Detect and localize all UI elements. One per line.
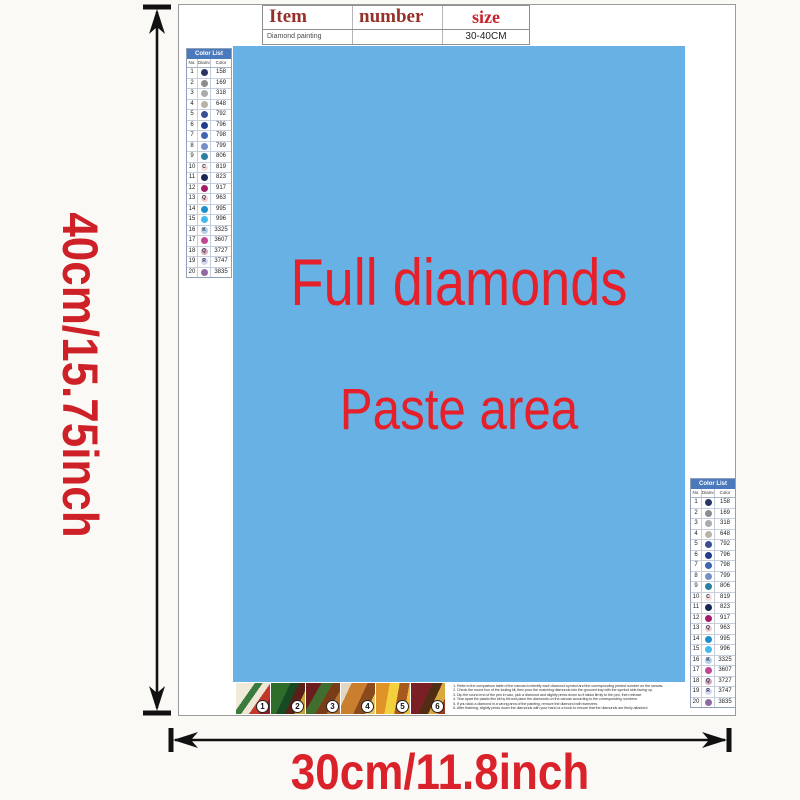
color-code: 917 xyxy=(715,614,735,624)
diamond-color-dot xyxy=(201,80,208,87)
color-row-number: 14 xyxy=(187,205,198,215)
diamond-swatch-cell xyxy=(198,110,211,120)
diamond-swatch-cell xyxy=(702,698,715,708)
diamond-color-dot: R xyxy=(705,688,712,695)
diamond-symbol: C xyxy=(201,164,208,171)
color-row-number: 17 xyxy=(691,666,702,676)
color-code: 318 xyxy=(211,89,231,99)
diamond-symbol: K xyxy=(705,657,712,664)
diamond-color-dot: K xyxy=(705,657,712,664)
diamond-swatch-cell xyxy=(198,142,211,152)
diamond-swatch-cell xyxy=(198,79,211,89)
diamond-color-dot xyxy=(201,206,208,213)
color-row: 15 996 xyxy=(187,215,231,226)
diamond-symbol xyxy=(201,237,208,244)
color-code: 819 xyxy=(211,163,231,173)
color-code: 798 xyxy=(211,131,231,141)
diamond-swatch-cell xyxy=(198,152,211,162)
height-dimension-label: 40cm/15.75inch xyxy=(51,199,109,551)
diamond-swatch-cell: Q xyxy=(702,624,715,634)
diamond-swatch-cell: C xyxy=(702,593,715,603)
col-color-label: Color xyxy=(715,489,735,497)
diamond-symbol xyxy=(201,132,208,139)
header-size: size xyxy=(443,6,529,29)
diamond-symbol xyxy=(201,80,208,87)
color-row: 8 799 xyxy=(691,572,735,583)
color-row: 16 K 3325 xyxy=(691,656,735,667)
color-row: 6 796 xyxy=(187,121,231,132)
diamond-color-dot xyxy=(705,562,712,569)
color-row: 9 806 xyxy=(187,152,231,163)
step-thumbnail-5: 5 xyxy=(376,683,410,714)
diamond-swatch-cell: Q xyxy=(702,677,715,687)
color-row-number: 1 xyxy=(691,498,702,508)
diamond-swatch-cell: R xyxy=(198,257,211,267)
diamond-color-dot xyxy=(201,153,208,160)
color-code: 169 xyxy=(211,79,231,89)
diamond-swatch-cell xyxy=(702,561,715,571)
item-table-value-row: Diamond painting 30-40CM xyxy=(263,30,529,44)
color-row-number: 16 xyxy=(187,226,198,236)
color-list-rows: 1 158 2 169 3 318 4 xyxy=(187,68,231,277)
color-code: 819 xyxy=(715,593,735,603)
header-item: Item xyxy=(263,6,353,29)
col-color-label: Color xyxy=(211,59,231,67)
diamond-color-dot xyxy=(705,636,712,643)
color-row: 12 917 xyxy=(187,184,231,195)
step-number-badge: 3 xyxy=(326,700,339,713)
diamond-swatch-cell xyxy=(702,614,715,624)
step-thumbnail-strip: 1 2 3 4 5 6 xyxy=(236,683,445,714)
instruction-text-block: 1. Refer to the comparison table of the … xyxy=(453,684,701,711)
paste-area-title: Full diamonds xyxy=(274,244,645,320)
diamond-symbol xyxy=(705,646,712,653)
diamond-swatch-cell: R xyxy=(702,687,715,697)
diamond-color-dot: Q xyxy=(201,195,208,202)
color-row-number: 19 xyxy=(187,257,198,267)
color-code: 963 xyxy=(211,194,231,204)
color-row: 4 648 xyxy=(187,100,231,111)
color-row-number: 10 xyxy=(187,163,198,173)
color-row-number: 20 xyxy=(187,268,198,278)
diamond-color-dot xyxy=(201,122,208,129)
diamond-symbol xyxy=(201,111,208,118)
color-code: 806 xyxy=(211,152,231,162)
diamond-symbol: Q xyxy=(705,625,712,632)
color-row-number: 16 xyxy=(691,656,702,666)
color-row-number: 6 xyxy=(187,121,198,131)
col-diamond-label: Diamond xyxy=(198,59,211,67)
color-row-number: 2 xyxy=(187,79,198,89)
diamond-swatch-cell: K xyxy=(198,226,211,236)
color-code: 995 xyxy=(211,205,231,215)
diamond-symbol xyxy=(201,69,208,76)
color-code: 648 xyxy=(211,100,231,110)
diamond-symbol xyxy=(705,562,712,569)
color-code: 3747 xyxy=(715,687,735,697)
diamond-color-dot xyxy=(705,499,712,506)
color-row: 5 792 xyxy=(691,540,735,551)
color-code: 3835 xyxy=(211,268,231,278)
color-row: 1 158 xyxy=(187,68,231,79)
height-dimension-arrow xyxy=(141,2,173,718)
color-row-number: 1 xyxy=(187,68,198,78)
color-list-panel-right: Color List No. Diamond Color 1 158 2 169 xyxy=(690,478,736,708)
step-number-badge: 6 xyxy=(431,700,444,713)
step-thumbnail-6: 6 xyxy=(411,683,445,714)
width-dimension-label: 30cm/11.8inch xyxy=(220,744,660,800)
diamond-swatch-cell xyxy=(198,100,211,110)
color-list-title: Color List xyxy=(691,479,735,489)
diamond-swatch-cell xyxy=(702,645,715,655)
item-name-cell: Diamond painting xyxy=(263,30,353,44)
paste-area-subtitle: Paste area xyxy=(267,376,651,443)
color-code: 792 xyxy=(211,110,231,120)
diamond-swatch-cell xyxy=(702,635,715,645)
diamond-swatch-cell xyxy=(702,551,715,561)
color-row-number: 9 xyxy=(187,152,198,162)
diamond-color-dot xyxy=(201,132,208,139)
color-row-number: 15 xyxy=(691,645,702,655)
color-code: 823 xyxy=(211,173,231,183)
diamond-swatch-cell xyxy=(702,509,715,519)
diamond-swatch-cell xyxy=(198,121,211,131)
color-row-number: 4 xyxy=(691,530,702,540)
color-row: 7 798 xyxy=(691,561,735,572)
diamond-color-dot xyxy=(705,573,712,580)
diamond-symbol: K xyxy=(201,227,208,234)
color-code: 3835 xyxy=(715,698,735,708)
diamond-swatch-cell xyxy=(198,184,211,194)
color-code: 798 xyxy=(715,561,735,571)
diamond-color-dot: R xyxy=(201,258,208,265)
diamond-symbol xyxy=(705,541,712,548)
diamond-symbol: Q xyxy=(705,678,712,685)
diamond-color-dot: C xyxy=(705,594,712,601)
color-row: 14 995 xyxy=(691,635,735,646)
diamond-symbol xyxy=(201,269,208,276)
diamond-swatch-cell xyxy=(702,582,715,592)
diamond-symbol xyxy=(705,499,712,506)
item-number-cell xyxy=(353,30,443,44)
color-row: 11 823 xyxy=(187,173,231,184)
color-code: 823 xyxy=(715,603,735,613)
color-code: 3325 xyxy=(211,226,231,236)
col-diamond-label: Diamond xyxy=(702,489,715,497)
color-list-column-headers: No. Diamond Color xyxy=(187,59,231,68)
color-row-number: 5 xyxy=(691,540,702,550)
diamond-color-dot xyxy=(705,604,712,611)
color-row: 3 318 xyxy=(187,89,231,100)
color-code: 169 xyxy=(715,509,735,519)
diamond-swatch-cell xyxy=(198,131,211,141)
color-row: 5 792 xyxy=(187,110,231,121)
color-row-number: 10 xyxy=(691,593,702,603)
diamond-color-dot xyxy=(201,101,208,108)
color-code: 917 xyxy=(211,184,231,194)
diamond-swatch-cell xyxy=(198,215,211,225)
color-row-number: 17 xyxy=(187,236,198,246)
color-code: 792 xyxy=(715,540,735,550)
step-thumbnail-1: 1 xyxy=(236,683,270,714)
diamond-symbol xyxy=(705,520,712,527)
diamond-symbol: C xyxy=(705,594,712,601)
diamond-symbol: Q xyxy=(201,248,208,255)
diamond-symbol xyxy=(201,153,208,160)
color-row-number: 3 xyxy=(187,89,198,99)
color-row-number: 6 xyxy=(691,551,702,561)
color-row: 13 Q 963 xyxy=(691,624,735,635)
diamond-symbol xyxy=(201,174,208,181)
color-code: 995 xyxy=(715,635,735,645)
diamond-color-dot xyxy=(705,646,712,653)
color-code: 996 xyxy=(715,645,735,655)
diamond-color-dot xyxy=(705,510,712,517)
color-code: 158 xyxy=(211,68,231,78)
diamond-symbol xyxy=(201,101,208,108)
color-code: 799 xyxy=(211,142,231,152)
item-info-table: Item number size Diamond painting 30-40C… xyxy=(262,5,530,45)
color-row-number: 5 xyxy=(187,110,198,120)
diamond-swatch-cell xyxy=(702,519,715,529)
color-row: 1 158 xyxy=(691,498,735,509)
diamond-symbol: R xyxy=(201,258,208,265)
diamond-painting-size-diagram: 40cm/15.75inch 30cm/11.8inch Item number… xyxy=(0,0,800,800)
diamond-swatch-cell xyxy=(702,666,715,676)
color-row: 20 3835 xyxy=(187,268,231,278)
diamond-color-dot xyxy=(201,90,208,97)
color-code: 3747 xyxy=(211,257,231,267)
color-row: 2 169 xyxy=(691,509,735,520)
color-row-number: 18 xyxy=(187,247,198,257)
color-row: 15 996 xyxy=(691,645,735,656)
item-size-cell: 30-40CM xyxy=(443,30,529,44)
diamond-swatch-cell xyxy=(702,530,715,540)
paste-area: Full diamonds Paste area xyxy=(233,46,685,682)
color-row-number: 14 xyxy=(691,635,702,645)
color-row: 11 823 xyxy=(691,603,735,614)
diamond-swatch-cell: C xyxy=(198,163,211,173)
color-row-number: 13 xyxy=(187,194,198,204)
color-code: 318 xyxy=(715,519,735,529)
color-row: 10 C 819 xyxy=(691,593,735,604)
color-row: 3 318 xyxy=(691,519,735,530)
diamond-symbol xyxy=(705,573,712,580)
diamond-symbol xyxy=(201,143,208,150)
color-row: 17 3607 xyxy=(187,236,231,247)
diamond-color-dot xyxy=(201,216,208,223)
color-row-number: 4 xyxy=(187,100,198,110)
color-row: 19 R 3747 xyxy=(187,257,231,268)
instruction-line: 6. After finishing, slightly press down … xyxy=(453,706,701,710)
step-thumbnail-3: 3 xyxy=(306,683,340,714)
diamond-color-dot xyxy=(705,615,712,622)
diamond-symbol xyxy=(705,636,712,643)
diamond-color-dot: C xyxy=(201,164,208,171)
diamond-swatch-cell xyxy=(198,173,211,183)
diamond-symbol: Q xyxy=(201,195,208,202)
diamond-color-dot xyxy=(705,583,712,590)
color-row: 4 648 xyxy=(691,530,735,541)
diamond-symbol xyxy=(705,615,712,622)
color-list-panel-left: Color List No. Diamond Color 1 158 2 169 xyxy=(186,48,232,278)
color-code: 648 xyxy=(715,530,735,540)
color-row: 9 806 xyxy=(691,582,735,593)
diamond-color-dot xyxy=(201,69,208,76)
diamond-swatch-cell xyxy=(198,68,211,78)
color-code: 796 xyxy=(211,121,231,131)
diamond-color-dot xyxy=(705,531,712,538)
color-code: 3727 xyxy=(715,677,735,687)
diamond-swatch-cell xyxy=(702,540,715,550)
color-code: 3607 xyxy=(211,236,231,246)
diamond-color-dot xyxy=(201,237,208,244)
color-code: 996 xyxy=(211,215,231,225)
diamond-swatch-cell xyxy=(198,236,211,246)
col-no-label: No. xyxy=(187,59,198,67)
color-row-number: 7 xyxy=(691,561,702,571)
step-number-badge: 1 xyxy=(256,700,269,713)
color-row-number: 15 xyxy=(187,215,198,225)
diamond-swatch-cell xyxy=(702,603,715,613)
color-row-number: 8 xyxy=(187,142,198,152)
diamond-swatch-cell xyxy=(198,268,211,278)
diamond-color-dot xyxy=(201,269,208,276)
diamond-swatch-cell xyxy=(702,572,715,582)
diamond-symbol xyxy=(201,206,208,213)
color-code: 796 xyxy=(715,551,735,561)
diamond-swatch-cell xyxy=(198,89,211,99)
color-row-number: 9 xyxy=(691,582,702,592)
diamond-color-dot: Q xyxy=(705,625,712,632)
color-row-number: 12 xyxy=(187,184,198,194)
color-row-number: 11 xyxy=(187,173,198,183)
color-row: 16 K 3325 xyxy=(187,226,231,237)
diamond-symbol xyxy=(201,90,208,97)
color-row-number: 3 xyxy=(691,519,702,529)
diamond-color-dot xyxy=(705,520,712,527)
step-number-badge: 2 xyxy=(291,700,304,713)
item-table-header-row: Item number size xyxy=(263,6,529,30)
color-list-title: Color List xyxy=(187,49,231,59)
diamond-swatch-cell xyxy=(702,498,715,508)
diamond-symbol xyxy=(705,531,712,538)
diamond-color-dot xyxy=(705,667,712,674)
diamond-swatch-cell: K xyxy=(702,656,715,666)
diamond-swatch-cell: Q xyxy=(198,194,211,204)
diamond-symbol xyxy=(201,216,208,223)
color-row: 7 798 xyxy=(187,131,231,142)
color-row: 8 799 xyxy=(187,142,231,153)
color-row-number: 8 xyxy=(691,572,702,582)
step-thumbnail-4: 4 xyxy=(341,683,375,714)
color-row: 12 917 xyxy=(691,614,735,625)
diamond-color-dot: Q xyxy=(201,248,208,255)
color-row-number: 11 xyxy=(691,603,702,613)
diamond-symbol xyxy=(201,185,208,192)
diamond-symbol xyxy=(705,604,712,611)
diamond-color-dot: Q xyxy=(705,678,712,685)
color-row-number: 13 xyxy=(691,624,702,634)
diamond-color-dot xyxy=(705,699,712,706)
diamond-color-dot xyxy=(201,174,208,181)
step-number-badge: 4 xyxy=(361,700,374,713)
color-list-rows: 1 158 2 169 3 318 4 xyxy=(691,498,735,707)
diamond-color-dot xyxy=(201,111,208,118)
diamond-swatch-cell: Q xyxy=(198,247,211,257)
diamond-symbol xyxy=(705,667,712,674)
diamond-symbol: R xyxy=(705,688,712,695)
diamond-symbol xyxy=(705,699,712,706)
color-row: 6 796 xyxy=(691,551,735,562)
col-no-label: No. xyxy=(691,489,702,497)
color-row: 14 995 xyxy=(187,205,231,216)
color-code: 3727 xyxy=(211,247,231,257)
diamond-symbol xyxy=(705,510,712,517)
color-code: 806 xyxy=(715,582,735,592)
diamond-symbol xyxy=(201,122,208,129)
diamond-color-dot xyxy=(201,143,208,150)
color-row: 13 Q 963 xyxy=(187,194,231,205)
color-code: 3607 xyxy=(715,666,735,676)
color-row: 18 Q 3727 xyxy=(187,247,231,258)
step-thumbnail-2: 2 xyxy=(271,683,305,714)
color-row-number: 2 xyxy=(691,509,702,519)
color-row-number: 7 xyxy=(187,131,198,141)
color-row-number: 12 xyxy=(691,614,702,624)
diamond-color-dot xyxy=(705,552,712,559)
color-code: 963 xyxy=(715,624,735,634)
diamond-color-dot xyxy=(705,541,712,548)
diamond-symbol xyxy=(705,583,712,590)
color-row: 10 C 819 xyxy=(187,163,231,174)
header-number: number xyxy=(353,6,443,29)
color-code: 799 xyxy=(715,572,735,582)
color-row: 2 169 xyxy=(187,79,231,90)
diamond-swatch-cell xyxy=(198,205,211,215)
diamond-color-dot xyxy=(201,185,208,192)
diamond-color-dot: K xyxy=(201,227,208,234)
color-row: 17 3607 xyxy=(691,666,735,677)
diamond-symbol xyxy=(705,552,712,559)
color-list-column-headers: No. Diamond Color xyxy=(691,489,735,498)
color-code: 158 xyxy=(715,498,735,508)
color-code: 3325 xyxy=(715,656,735,666)
step-number-badge: 5 xyxy=(396,700,409,713)
